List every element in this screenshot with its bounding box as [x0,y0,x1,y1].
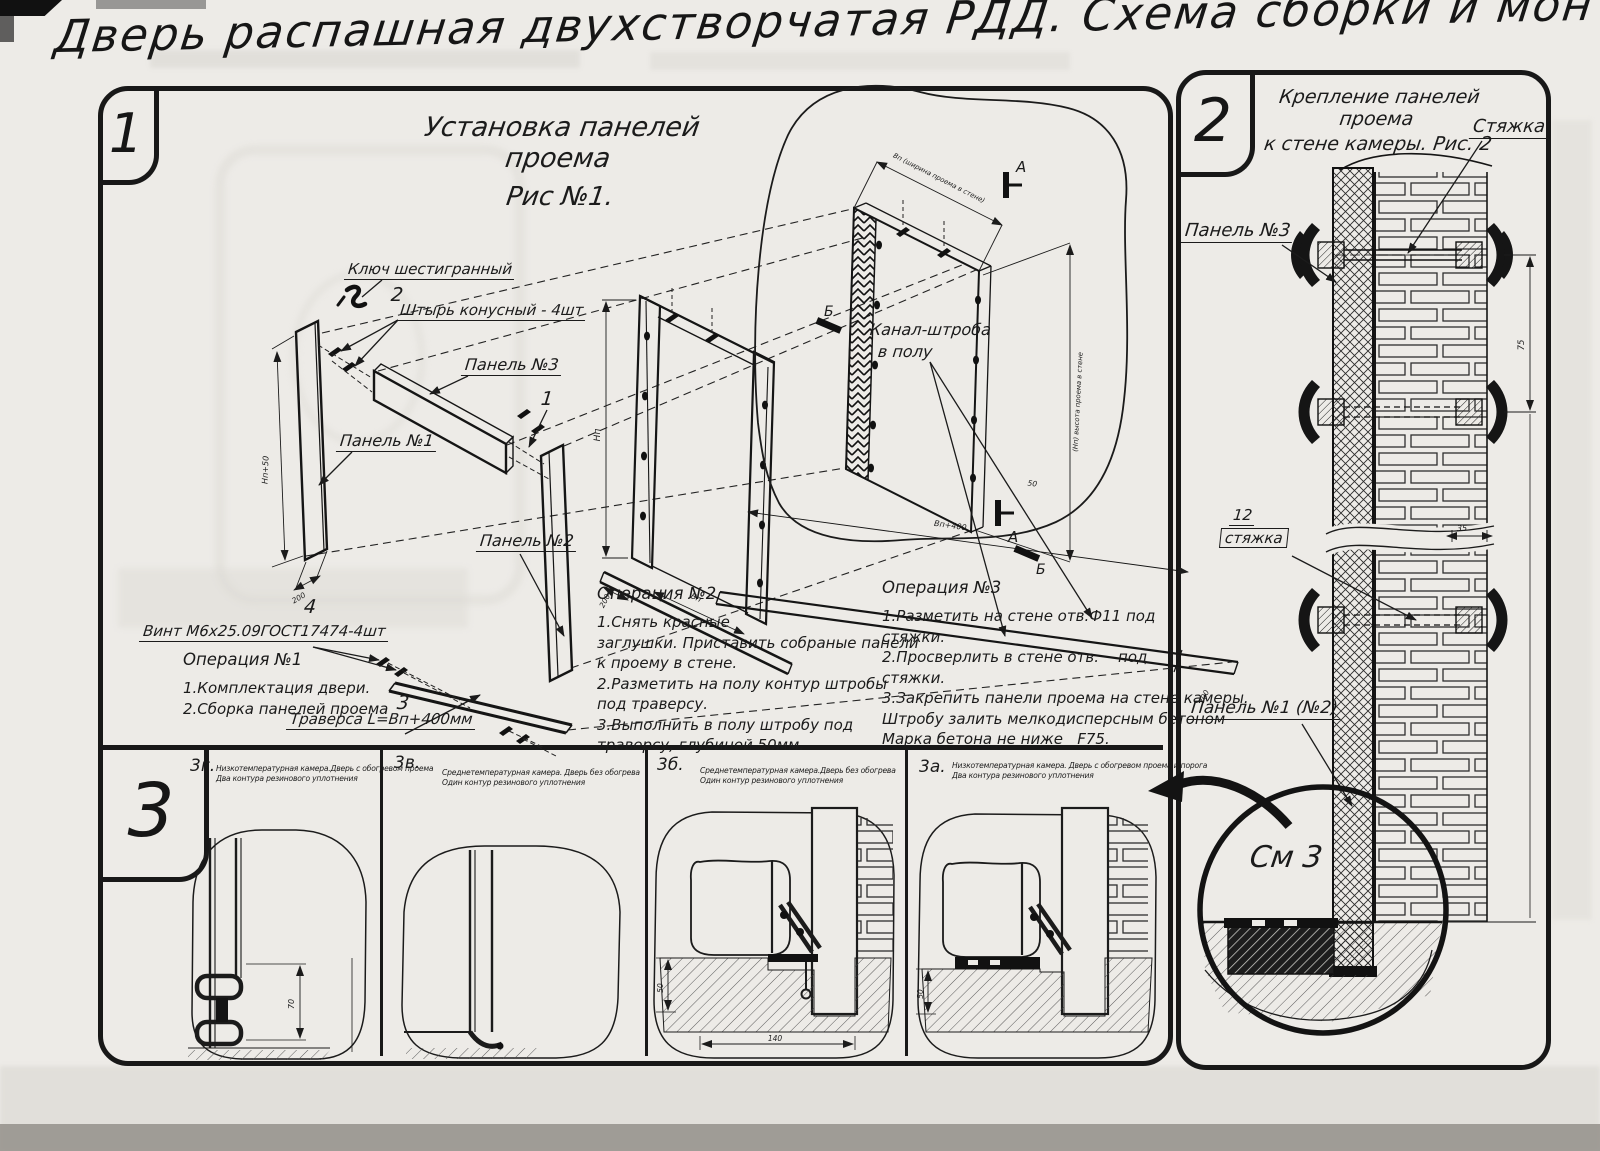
detail-3v-caption: Среднетемпературная камера. Дверь без об… [442,768,640,788]
scan-ghost-right [1552,120,1592,920]
sheet-title: Дверь распашная двухстворчатая РДД. Схем… [52,0,1600,63]
scan-mark-left [0,16,14,42]
operation-3-block: Операция №3 1.Разметить на стене отв.Ф11… [882,578,1249,750]
detail-3a-id: 3а. [919,757,946,777]
section3-marker: 3 [127,768,174,854]
label-fig2-panel3: Панель №3 [1181,220,1295,243]
operation-3-line: стяжки. [882,627,1249,648]
label-channel-line1: Канал-штроба [869,320,992,339]
scan-edge-bottom [0,1124,1600,1151]
fig2-title-block: Крепление панелей проема к стене камеры.… [1248,86,1508,155]
detail-3g-caption-line2: Два контура резинового уплотнения [216,774,433,784]
detail-3v-id: 3в. [394,753,420,773]
fig1-title: Установка панелей проема [391,112,730,174]
fig1-subtitle: Рис №1. [393,182,727,212]
label-number-1: 1 [540,388,554,410]
operation-3-line: стяжки. [882,668,1249,689]
operation-3-line: 1.Разметить на стене отв.Ф11 под [882,606,1249,627]
detail-3v-caption-line1: Среднетемпературная камера. Дверь без об… [442,768,640,778]
label-see-detail-3: См 3 [1248,840,1325,875]
section1-marker-tab: 1 [98,86,159,185]
scan-mark-corner [0,0,62,16]
operation-2-line: под траверсу. [597,694,919,715]
detail-3b-caption: Среднетемпературная камера.Дверь без обо… [700,766,896,786]
panel-section-1 [98,86,1173,1066]
scan-ghost-top-2 [650,52,1070,70]
detail-3a-caption-line2: Два контура резинового уплотнения [952,771,1207,781]
operation-1-line: 1.Комплектация двери. [183,678,388,699]
operation-2-line: 2.Разметить на полу контур штробы [597,674,919,695]
section1-marker: 1 [109,102,143,165]
section2-marker-tab: 2 [1176,70,1255,177]
label-screw: Винт М6х25.09ГОСТ17474-4шт [139,622,390,642]
label-channel-line2: в полу [877,342,933,361]
scan-ghost-bottom [0,1066,1600,1151]
detail-3b-id: 3б. [657,755,684,775]
label-panel3: Панель №3 [461,355,563,376]
detail-3b-caption-line2: Один контур резинового уплотнения [700,776,896,786]
operation-3-line: 2.Просверлить в стене отв. под [882,647,1249,668]
label-panel1: Панель №1 [336,431,438,452]
section3-split-3 [905,750,908,1056]
section3-split-1 [380,750,383,1056]
operation-2-title: Операция №2 [597,584,919,603]
label-panel12: Панель №1 (№2) [1187,698,1342,720]
operation-1-block: Операция №1 1.Комплектация двери. 2.Сбор… [183,650,388,719]
operation-1-title: Операция №1 [183,650,388,669]
operation-2-line: траверсу, глубиной 50мм. [597,735,919,756]
operation-2-line: к проему в стене. [597,653,919,674]
operation-2-line: 1.Снять красные [597,612,919,633]
label-pin: Штырь конусный - 4шт [396,301,587,321]
operation-3-line: Марка бетона не ниже F75. [882,729,1249,750]
label-tie: Стяжка [1469,116,1549,139]
label-tie-number: 12 [1229,506,1256,526]
drawing-sheet: Дверь распашная двухстворчатая РДД. Схем… [0,0,1600,1151]
label-tie-small: стяжка [1219,528,1289,548]
operation-1-line: 2.Сборка панелей проема [183,699,388,720]
detail-3b-caption-line1: Среднетемпературная камера.Дверь без обо… [700,766,896,776]
operation-3-title: Операция №3 [882,578,1249,597]
section3-split-2 [645,750,648,1056]
section2-marker: 2 [1194,86,1232,156]
operation-2-block: Операция №2 1.Снять красные заглушки. Пр… [597,584,919,756]
detail-3v-caption-line2: Один контур резинового уплотнения [442,778,640,788]
detail-3a-caption-line1: Низкотемпературная камера. Дверь с обогр… [952,761,1207,771]
operation-2-line: 3.Выполнить в полу штробу под [597,715,919,736]
detail-3g-id: 3г. [190,756,215,776]
detail-3a-caption: Низкотемпературная камера. Дверь с обогр… [952,761,1207,781]
label-number-4: 4 [303,596,317,618]
operation-2-line: заглушки. Приставить собраные панели [597,633,919,654]
label-panel2: Панель №2 [476,531,578,552]
label-hex-key: Ключ шестигранный [344,260,516,280]
fig1-title-block: Установка панелей проема Рис №1. [395,112,725,212]
